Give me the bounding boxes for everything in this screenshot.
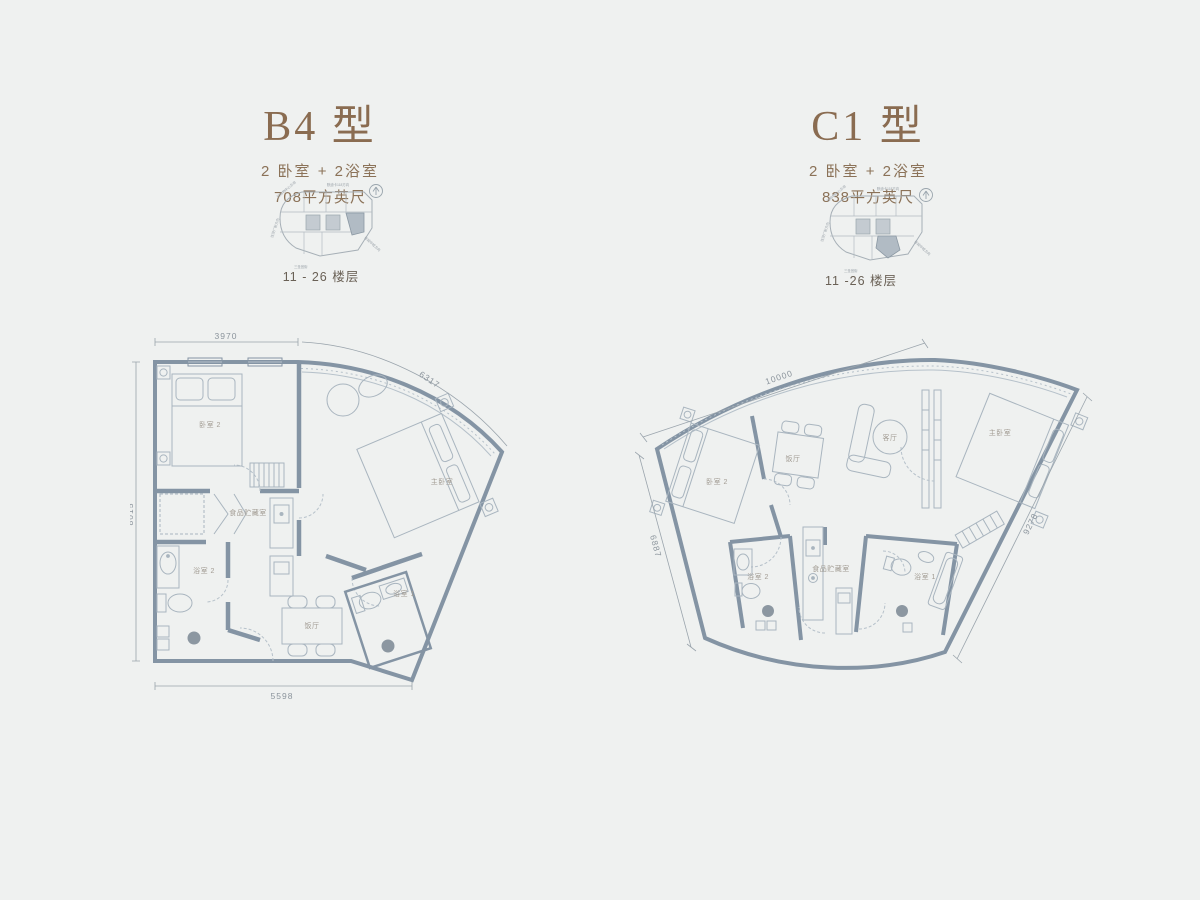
c1-subtitle: 2 卧室 + 2浴室 <box>748 160 988 181</box>
b4-bath2-fixtures <box>157 546 192 650</box>
b4-bath1 <box>345 572 431 668</box>
keyplan-label-left: 往茨厂街方向 <box>819 221 830 242</box>
c1-title: C1 型 <box>748 92 988 153</box>
c1-dim-right: 9278 <box>1021 511 1040 536</box>
b4-master-bed <box>351 393 499 552</box>
c1-bath1-floor-trap <box>896 605 908 617</box>
b4-label-master: 主卧室 <box>431 477 454 486</box>
c1-kitchen-counters <box>803 527 852 634</box>
north-arrow-glyph <box>923 191 929 199</box>
b4-floor-range: 11 - 26 楼层 <box>231 266 411 285</box>
keyplan-tower-block-1 <box>856 219 870 234</box>
b4-bath1-floor-trap <box>382 640 395 653</box>
b4-bed-2 <box>157 366 242 466</box>
b4-label-bedroom2: 卧室 2 <box>199 420 221 429</box>
b4-dim-left: 8015 <box>130 503 135 526</box>
keyplan-label-topleft: 往购物中心方向 <box>825 183 847 202</box>
c1-dim-lines <box>635 339 1092 663</box>
keyplan-tower-block-2 <box>876 219 890 234</box>
c1-outer-walls <box>657 360 1077 668</box>
b4-floorplan: 卧室 2 主卧室 食品贮藏室 浴室 2 饭厅 浴室 1 3970 6317 80… <box>130 330 510 710</box>
c1-floor-range: 11 -26 楼层 <box>771 270 951 289</box>
north-arrow-glyph <box>373 187 379 195</box>
c1-label-bath1: 浴室 1 <box>914 572 936 581</box>
c1-partition-strips <box>922 390 941 508</box>
keyplan-label-right: 往城中城方向 <box>363 235 382 253</box>
b4-shower-floor-trap <box>188 632 201 645</box>
b4-round-chair <box>327 384 359 416</box>
b4-pantry-counter <box>270 498 293 596</box>
b4-label-dining: 饭厅 <box>305 621 320 630</box>
b4-outer-walls <box>155 362 502 680</box>
b4-label-pantry: 食品贮藏室 <box>229 508 267 517</box>
keyplan-tower-block-1 <box>306 215 320 230</box>
b4-label-bath2: 浴室 2 <box>193 566 215 575</box>
c1-label-living: 客厅 <box>883 433 898 442</box>
keyplan-label-right: 往城中城方向 <box>913 239 932 257</box>
c1-label-master: 主卧室 <box>989 428 1012 437</box>
b4-keyplan: 默迪卡118方向 往购物中心方向 往茨厂街方向 三圣宫街 往城中城方向 <box>268 176 390 272</box>
c1-keyplan: 默迪卡118方向 往购物中心方向 往茨厂街方向 三圣宫街 往城中城方向 <box>818 180 940 276</box>
c1-bath2-floor-trap <box>762 605 774 617</box>
keyplan-label-topleft: 往购物中心方向 <box>275 179 297 198</box>
c1-label-pantry: 食品贮藏室 <box>812 564 850 573</box>
c1-floorplan: 卧室 2 饭厅 客厅 主卧室 浴室 2 食品贮藏室 浴室 1 10000 688… <box>635 335 1095 680</box>
b4-dim-diag: 6317 <box>417 369 442 390</box>
c1-bed-2 <box>650 407 764 538</box>
b4-dim-bottom: 5598 <box>271 691 294 701</box>
c1-label-bath2: 浴室 2 <box>747 572 769 581</box>
keyplan-label-left: 往茨厂街方向 <box>269 217 280 238</box>
keyplan-label-top: 默迪卡118方向 <box>877 186 900 191</box>
b4-dim-top: 3970 <box>215 331 238 341</box>
floorplan-brochure-page: { "page": {"background": "#eff1f0"}, "co… <box>0 0 1200 900</box>
c1-master-wardrobe <box>955 511 1004 548</box>
c1-bath1-fixtures <box>883 550 963 632</box>
b4-label-bath1: 浴室 1 <box>393 589 415 598</box>
b4-balcony-inner-line <box>302 372 491 456</box>
c1-label-bedroom2: 卧室 2 <box>706 477 728 486</box>
keyplan-highlighted-parcel <box>876 236 900 258</box>
keyplan-label-top: 默迪卡118方向 <box>327 182 350 187</box>
c1-label-dining: 饭厅 <box>786 454 801 463</box>
c1-dining-set <box>771 420 825 490</box>
keyplan-tower-block-2 <box>326 215 340 230</box>
b4-title: B4 型 <box>200 92 440 153</box>
